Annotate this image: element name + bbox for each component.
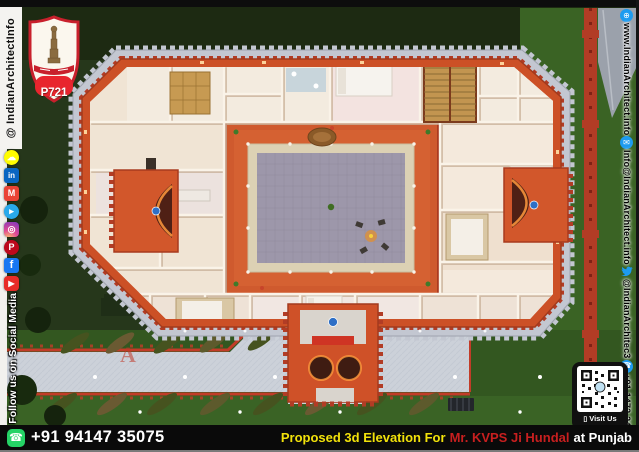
logo-badge: P721 — [26, 14, 82, 106]
project-location: at Punjab — [573, 430, 632, 445]
boundary-wall-right — [582, 8, 599, 362]
globe-icon: ⊕ — [620, 9, 633, 22]
pinterest-icon[interactable]: P — [4, 240, 19, 255]
telegram-icon[interactable]: ▸ — [4, 204, 19, 219]
whatsapp-icon: ☎ — [7, 429, 25, 447]
email-icon: ✉ — [620, 136, 633, 149]
logo-code: P721 — [26, 87, 82, 99]
whatsapp-contact[interactable]: ☎ +91 94147 35075 — [7, 428, 164, 447]
social-handle: @ IndianArchitectInfo — [5, 18, 17, 138]
client-name: Mr. KVPS Ji Hundal — [450, 430, 570, 445]
building-render-3d: Architect A — [0, 0, 639, 452]
website-text[interactable]: www.IndianArchitect.info — [622, 23, 631, 135]
watermark-letter: A — [120, 342, 136, 367]
courtyard-plant — [328, 204, 334, 210]
whatsapp-phone-number: +91 94147 35075 — [31, 428, 164, 447]
qr-code-block[interactable]: ▯ Visit Us — [572, 362, 628, 430]
gate-left — [112, 170, 178, 252]
gate-entrance-bottom — [286, 304, 380, 404]
title-prefix: Proposed 3d Elevation For — [281, 430, 446, 445]
facebook-icon[interactable]: f — [4, 258, 19, 273]
top-border-bar — [0, 0, 639, 7]
youtube-icon[interactable]: ▶ — [4, 276, 19, 291]
qr-visit-us: ▯ Visit Us — [583, 414, 616, 423]
project-title: Proposed 3d Elevation ForMr. KVPS Ji Hun… — [281, 430, 632, 445]
follow-us-band: Follow us on Social Media — [0, 292, 26, 425]
gmail-icon[interactable]: M — [4, 186, 19, 201]
snapchat-icon[interactable]: ☁ — [4, 150, 19, 165]
poster-canvas: Architect A — [0, 0, 639, 452]
follow-us-text: Follow us on Social Media — [7, 293, 19, 424]
social-icons-column: ☁ in M ▸ ◎ P f ▶ — [4, 150, 19, 291]
cattle-grate — [448, 398, 474, 411]
twitter-handle-text[interactable]: @IndianArchitec3 — [622, 279, 631, 359]
social-handle-band: @ IndianArchitectInfo — [0, 7, 22, 149]
instagram-icon[interactable]: ◎ — [4, 222, 19, 237]
gate-right — [504, 168, 570, 242]
bottom-info-bar: ☎ +91 94147 35075 Proposed 3d Elevation … — [0, 425, 639, 452]
central-courtyard — [248, 144, 414, 272]
qr-code — [577, 366, 623, 412]
email-text[interactable]: Info@IndianArchitect.info — [622, 150, 631, 265]
mobile-icon: ▯ — [583, 415, 587, 423]
twitter-icon — [620, 266, 634, 278]
linkedin-icon[interactable]: in — [4, 168, 19, 183]
